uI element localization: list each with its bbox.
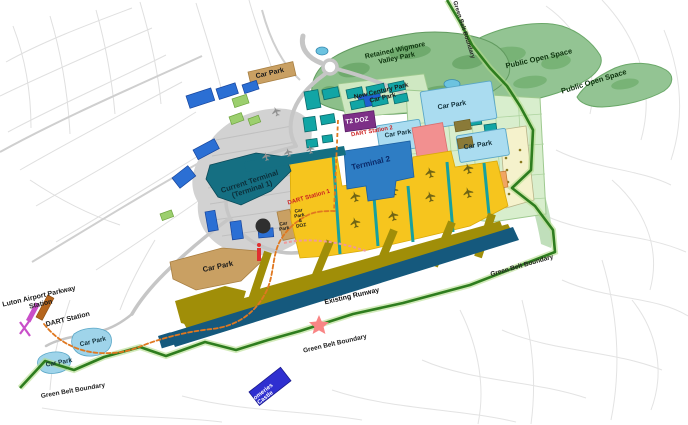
luton-airport-masterplan-map: Car Park Retained Wigmore Valley Park Pu… — [0, 0, 688, 425]
black-dot-marker — [256, 219, 271, 234]
star-icon — [309, 315, 329, 334]
someries-castle-block — [249, 367, 291, 405]
roundabout — [323, 60, 337, 74]
park-pond — [316, 47, 328, 55]
dart-station-marker — [36, 295, 54, 320]
parkway-station-marker — [20, 302, 40, 336]
red-marker — [257, 243, 261, 261]
masterplan-graphics — [0, 0, 688, 425]
